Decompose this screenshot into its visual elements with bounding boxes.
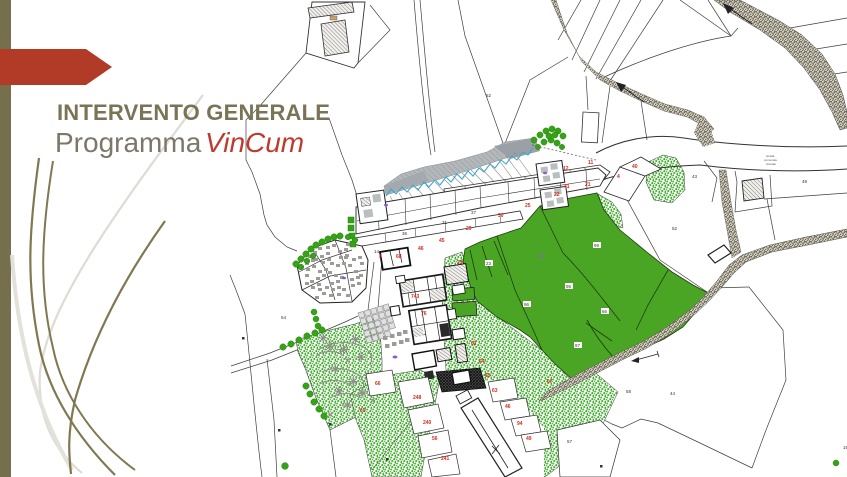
svg-text:23: 23	[486, 261, 492, 266]
svg-text:40: 40	[632, 164, 638, 170]
svg-text:54: 54	[281, 315, 287, 320]
svg-text:57: 57	[567, 439, 573, 444]
svg-text:161: 161	[843, 445, 847, 450]
svg-text:3: 3	[379, 254, 382, 260]
svg-text:241: 241	[441, 456, 450, 462]
svg-text:66: 66	[375, 381, 381, 387]
svg-text:36: 36	[402, 231, 408, 236]
svg-text:46: 46	[505, 404, 511, 410]
svg-text:65: 65	[485, 373, 491, 379]
svg-text:22: 22	[554, 192, 560, 198]
svg-text:94: 94	[517, 421, 523, 427]
svg-text:31: 31	[442, 220, 448, 225]
svg-text:52: 52	[486, 93, 492, 98]
svg-text:95: 95	[566, 284, 572, 289]
svg-text:46: 46	[418, 246, 424, 252]
svg-text:62: 62	[471, 341, 477, 347]
svg-text:66: 66	[602, 309, 608, 314]
svg-text:37: 37	[471, 210, 477, 215]
svg-text:44: 44	[670, 391, 676, 396]
svg-text:4: 4	[617, 174, 620, 180]
svg-text:240: 240	[423, 420, 432, 426]
svg-text:45: 45	[439, 238, 445, 244]
svg-text:99: 99	[594, 243, 600, 248]
svg-text:29: 29	[466, 226, 472, 232]
svg-text:52: 52	[672, 226, 678, 231]
svg-text:14: 14	[374, 249, 380, 254]
svg-text:30: 30	[498, 213, 504, 219]
svg-text:vicinale: vicinale	[766, 162, 776, 166]
svg-text:248: 248	[413, 395, 422, 401]
svg-text:21: 21	[585, 182, 591, 188]
svg-text:25: 25	[525, 203, 531, 209]
svg-text:63: 63	[492, 388, 498, 394]
svg-text:12: 12	[563, 166, 569, 172]
svg-text:41: 41	[564, 184, 570, 190]
svg-text:23: 23	[457, 260, 463, 266]
svg-text:43: 43	[692, 174, 698, 179]
svg-text:58: 58	[626, 389, 632, 394]
svg-text:65: 65	[360, 408, 366, 414]
svg-text:56: 56	[432, 436, 438, 442]
svg-text:67: 67	[547, 379, 553, 385]
svg-text:97: 97	[575, 343, 581, 348]
svg-text:49: 49	[526, 436, 532, 442]
svg-text:76: 76	[421, 311, 427, 317]
svg-text:64: 64	[479, 359, 485, 365]
svg-text:11: 11	[588, 160, 594, 166]
svg-text:96: 96	[524, 302, 530, 307]
svg-text:48: 48	[802, 179, 808, 184]
svg-text:743: 743	[411, 294, 420, 300]
svg-text:68: 68	[396, 254, 402, 260]
